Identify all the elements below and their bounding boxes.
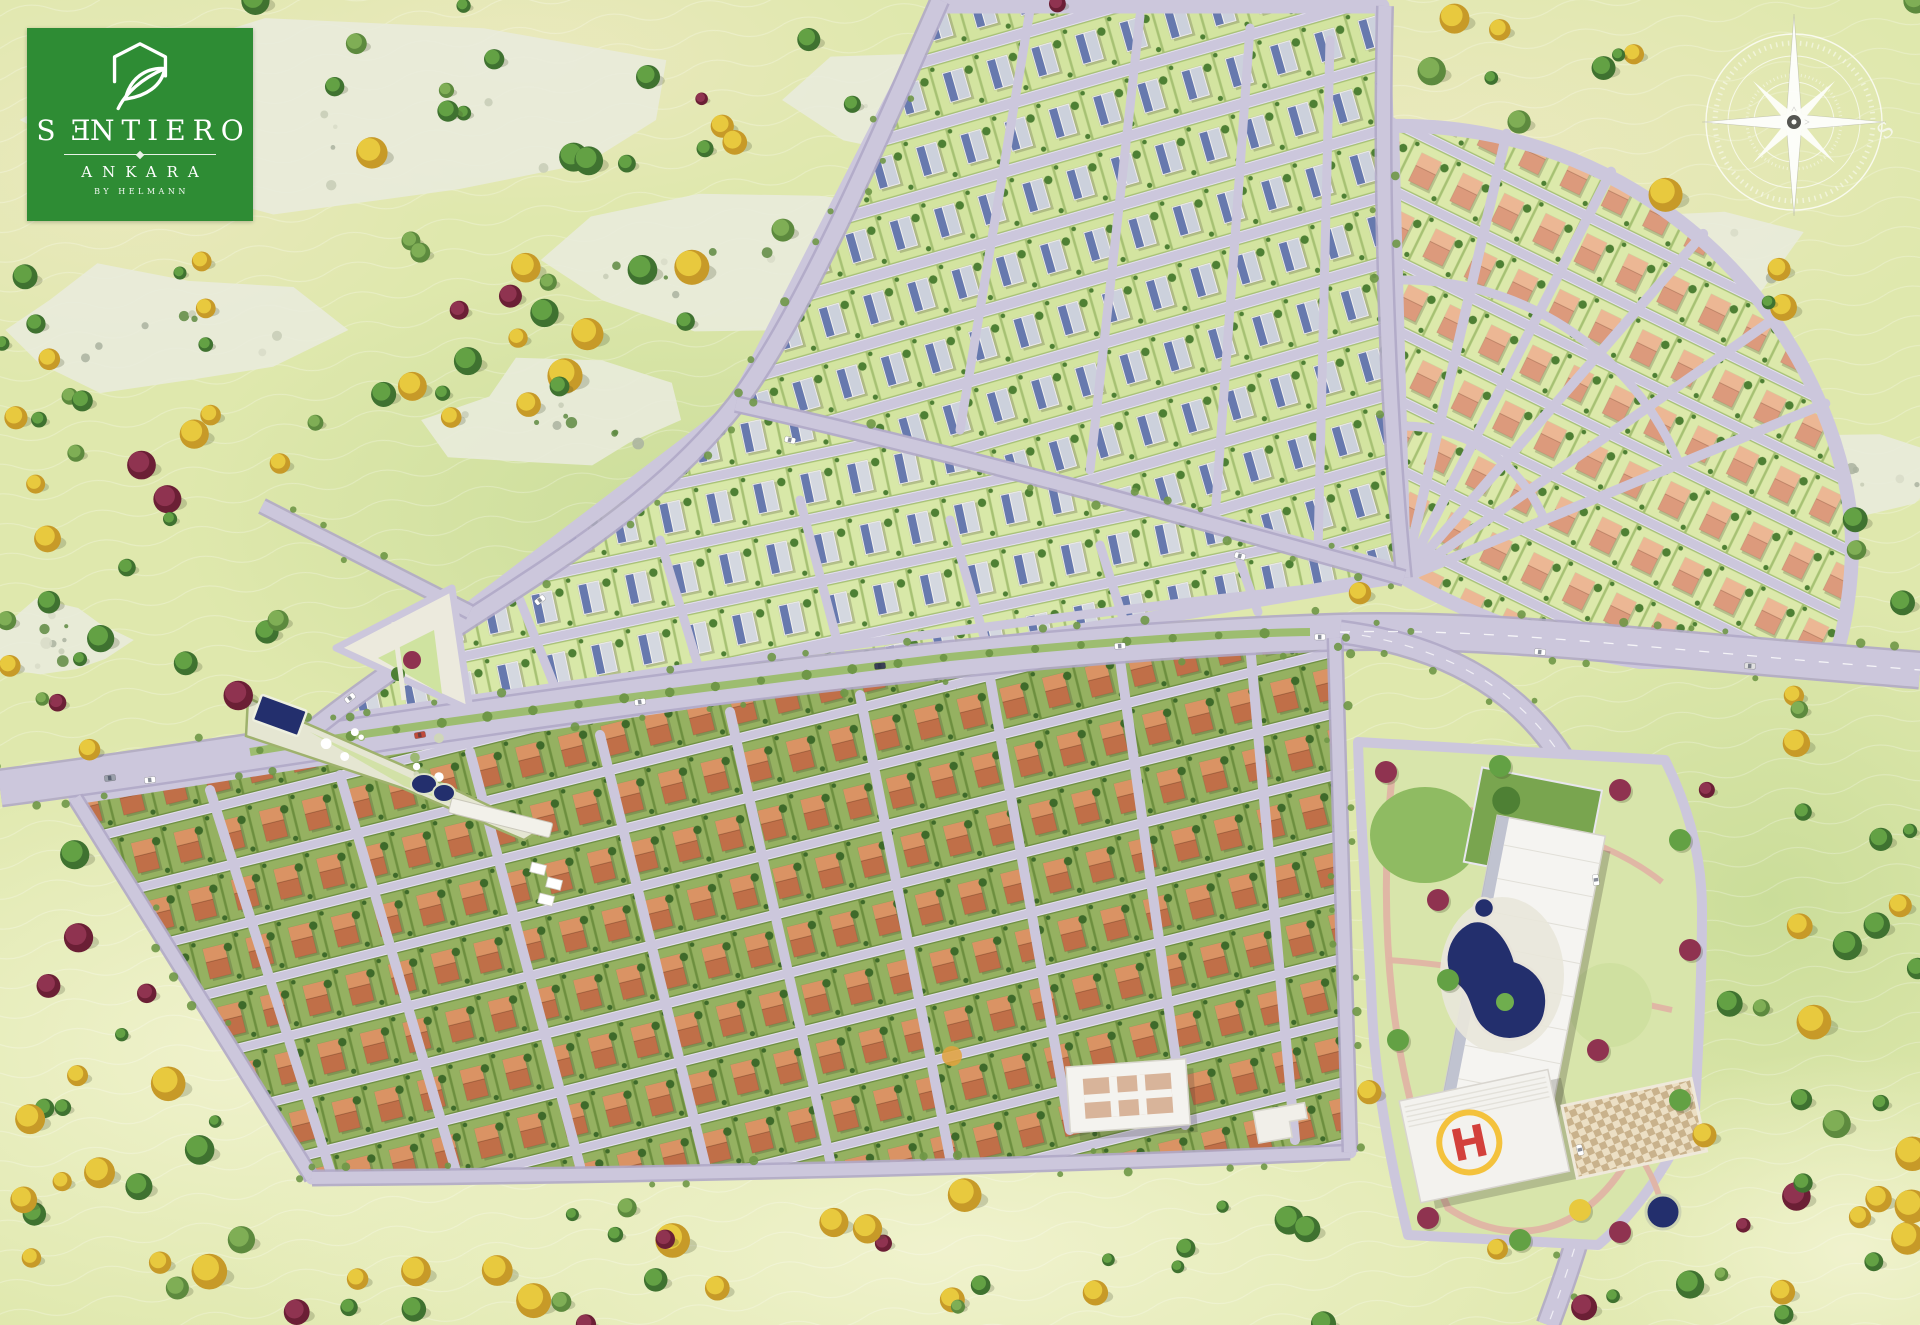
logo-divider bbox=[64, 154, 216, 155]
car bbox=[1744, 663, 1755, 670]
brand-reversed-e: E bbox=[63, 114, 90, 147]
car bbox=[1315, 634, 1326, 640]
brand-logo: SENTIERO ANKARA BY HELMANN bbox=[27, 28, 253, 221]
car bbox=[104, 774, 116, 781]
car bbox=[874, 662, 886, 669]
sentiero-house-leaf-icon bbox=[101, 38, 179, 118]
logo-city: ANKARA bbox=[27, 163, 253, 181]
playground bbox=[942, 1046, 962, 1066]
amenity-lawn bbox=[1370, 787, 1480, 883]
car bbox=[1114, 643, 1125, 650]
brand-name: SENTIERO bbox=[27, 114, 253, 147]
car bbox=[144, 776, 156, 783]
car bbox=[1592, 874, 1599, 886]
brand-letters: NTIERO bbox=[90, 114, 251, 147]
brand-letter: S bbox=[36, 114, 62, 147]
masterplan-canvas: HS SENTIERO ANKARA BY HELMANN bbox=[0, 0, 1920, 1325]
masterplan-map: HS bbox=[0, 0, 1920, 1325]
school-building bbox=[1066, 1058, 1198, 1141]
logo-byline: BY HELMANN bbox=[27, 187, 253, 196]
clubhouse-amenity-zone: H bbox=[1358, 742, 1707, 1253]
round-pond bbox=[1646, 1195, 1680, 1229]
car bbox=[1534, 648, 1546, 655]
